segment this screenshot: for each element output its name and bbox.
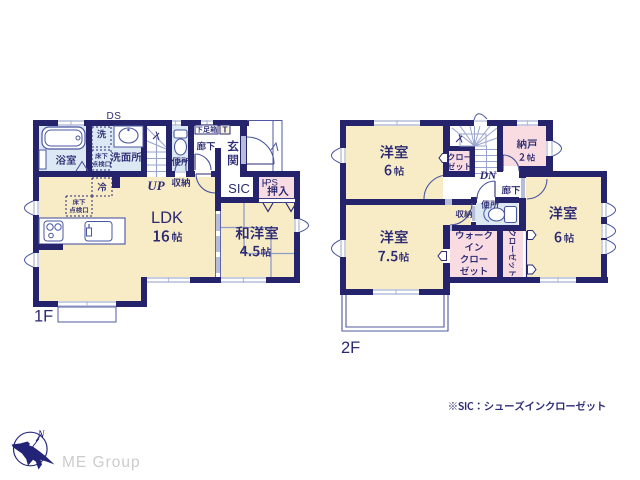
svg-text:UP: UP (147, 178, 165, 193)
svg-text:LDK: LDK (151, 209, 183, 227)
svg-text:N: N (36, 430, 45, 441)
svg-text:2F: 2F (341, 339, 360, 357)
svg-text:DN: DN (479, 170, 497, 182)
svg-text:1F: 1F (34, 308, 53, 326)
svg-text:T: T (222, 125, 228, 135)
svg-text:ME Group: ME Group (62, 454, 141, 471)
svg-text:SIC: SIC (228, 181, 250, 196)
svg-text:DS: DS (107, 111, 122, 122)
